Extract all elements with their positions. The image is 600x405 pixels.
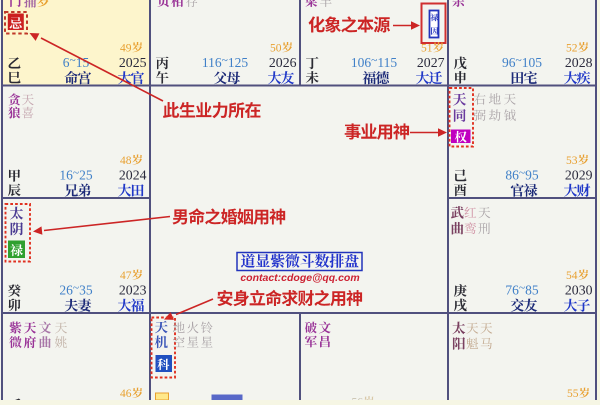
svg-text:2023: 2023	[119, 283, 147, 298]
svg-text:47: 47	[120, 270, 132, 282]
svg-text:2027: 2027	[417, 55, 445, 70]
svg-text:55: 55	[567, 388, 579, 400]
svg-text:53: 53	[566, 155, 578, 167]
svg-text:49: 49	[120, 42, 132, 54]
svg-text:48: 48	[120, 155, 132, 167]
svg-text:2026: 2026	[269, 55, 297, 70]
svg-text:2029: 2029	[565, 168, 593, 183]
svg-text:6~15: 6~15	[63, 55, 90, 70]
svg-text:54: 54	[566, 270, 578, 282]
svg-text:56: 56	[352, 397, 364, 401]
svg-text:contact:cdoge@qq.com: contact:cdoge@qq.com	[240, 272, 359, 284]
svg-text:2025: 2025	[119, 55, 147, 70]
svg-text:50: 50	[270, 42, 282, 54]
svg-text:2030: 2030	[565, 283, 593, 298]
svg-text:51: 51	[421, 42, 433, 54]
svg-text:2028: 2028	[565, 55, 593, 70]
svg-text:2024: 2024	[119, 168, 147, 183]
svg-text:52: 52	[566, 42, 578, 54]
svg-text:96~105: 96~105	[502, 55, 542, 70]
